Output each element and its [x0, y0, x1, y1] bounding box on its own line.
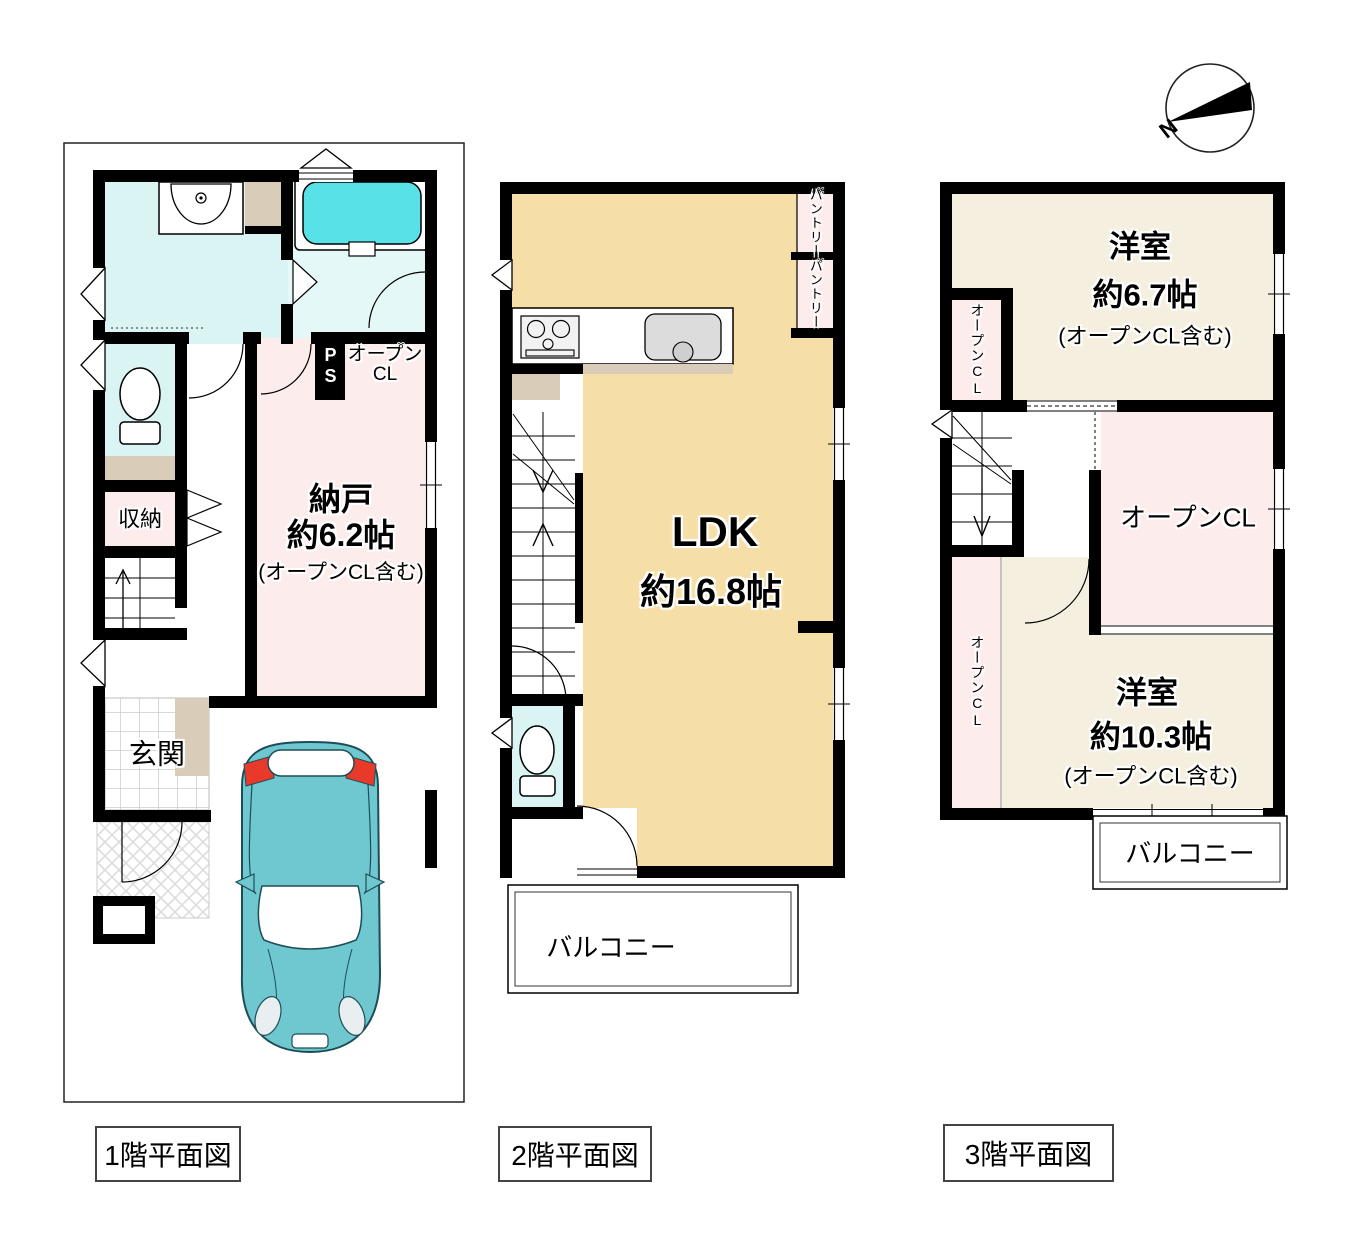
floor3-caption: 3階平面図	[943, 1124, 1114, 1182]
open-cl-center-label: オープンCL	[1120, 504, 1256, 531]
balcony3-label: バルコニー	[1125, 840, 1254, 867]
stairs-down	[952, 412, 1012, 545]
storage-room-label: 収納	[118, 507, 162, 530]
room1-size: 約6.7帖	[1092, 280, 1197, 313]
ldk-name: LDK	[672, 510, 758, 554]
balcony2-label: バルコニー	[546, 934, 675, 961]
windshield	[258, 886, 361, 949]
car-top-view	[236, 742, 384, 1052]
front-plate	[292, 1034, 328, 1048]
nando-room-size: 約6.2帖	[287, 519, 396, 553]
open-closet-label: オープン CL	[348, 345, 423, 385]
bathtub	[295, 176, 429, 256]
room2-name: 洋室	[1116, 678, 1178, 711]
pantry2-label: パントリー	[808, 259, 822, 329]
counter-ledge	[583, 364, 733, 374]
kitchen-counter	[512, 308, 733, 374]
garage-pillar	[98, 901, 150, 939]
stove-icon	[521, 316, 579, 358]
toilet-mat	[93, 456, 187, 480]
toilet	[520, 726, 555, 796]
sink-vanity	[159, 182, 243, 234]
ldk-size: 約16.8帖	[640, 573, 782, 611]
floor1-plan	[63, 142, 465, 1103]
pipe-space-label: PS	[321, 345, 340, 387]
open-cl-bottom-label: オープンCL	[970, 635, 985, 729]
room2-size: 約10.3帖	[1090, 722, 1212, 755]
compass: N	[1156, 56, 1266, 166]
room2-note: (オープンCL含む)	[1064, 764, 1237, 787]
rear-window	[268, 750, 354, 776]
nando-room-name: 納戸	[309, 483, 373, 517]
nando-room-note: (オープンCL含む)	[258, 562, 424, 584]
floor1-caption: 1階平面図	[95, 1126, 241, 1182]
sink-icon	[645, 314, 721, 362]
entrance-label: 玄関	[129, 739, 185, 768]
room1-name: 洋室	[1109, 232, 1171, 265]
floor2-caption: 2階平面図	[498, 1126, 652, 1182]
floor-plan-page: N	[0, 0, 1347, 1235]
room1-note: (オープンCL含む)	[1058, 324, 1231, 347]
pantry1-label: パントリー	[808, 188, 822, 258]
toilet	[120, 368, 160, 444]
hall-tan-block	[512, 374, 560, 400]
open-cl-top-label: オープンCL	[970, 303, 985, 397]
